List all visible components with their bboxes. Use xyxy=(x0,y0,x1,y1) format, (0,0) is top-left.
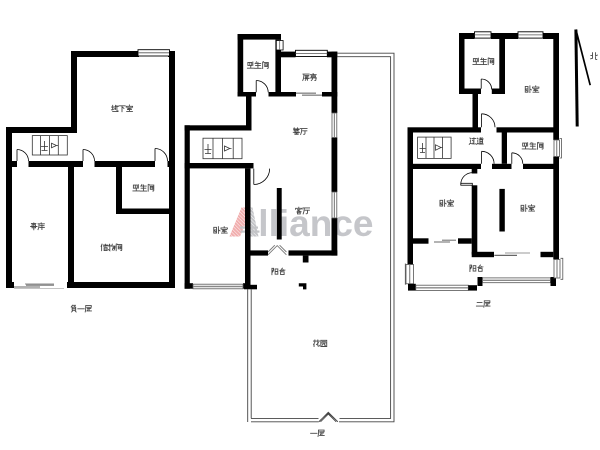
svg-text:lliance: lliance xyxy=(258,203,373,244)
